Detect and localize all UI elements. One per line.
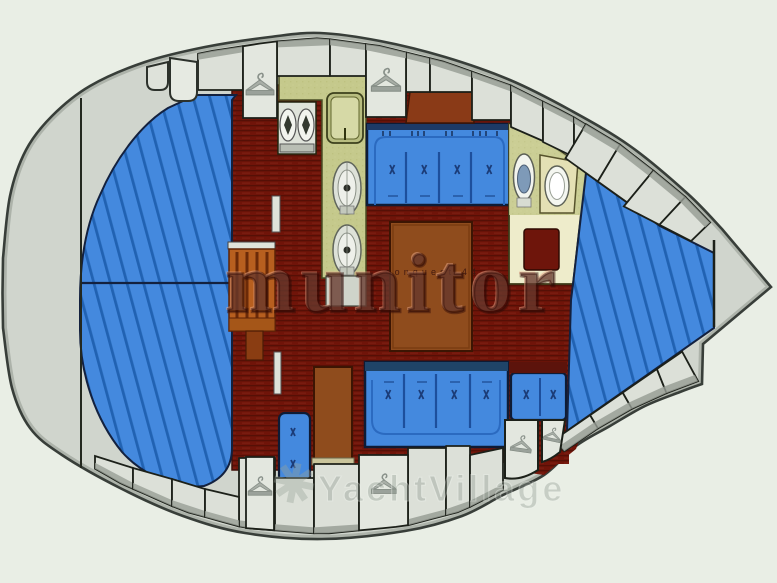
svg-text:munitor: munitor [226,238,562,331]
svg-text:YachtVillage: YachtVillage [318,468,565,509]
